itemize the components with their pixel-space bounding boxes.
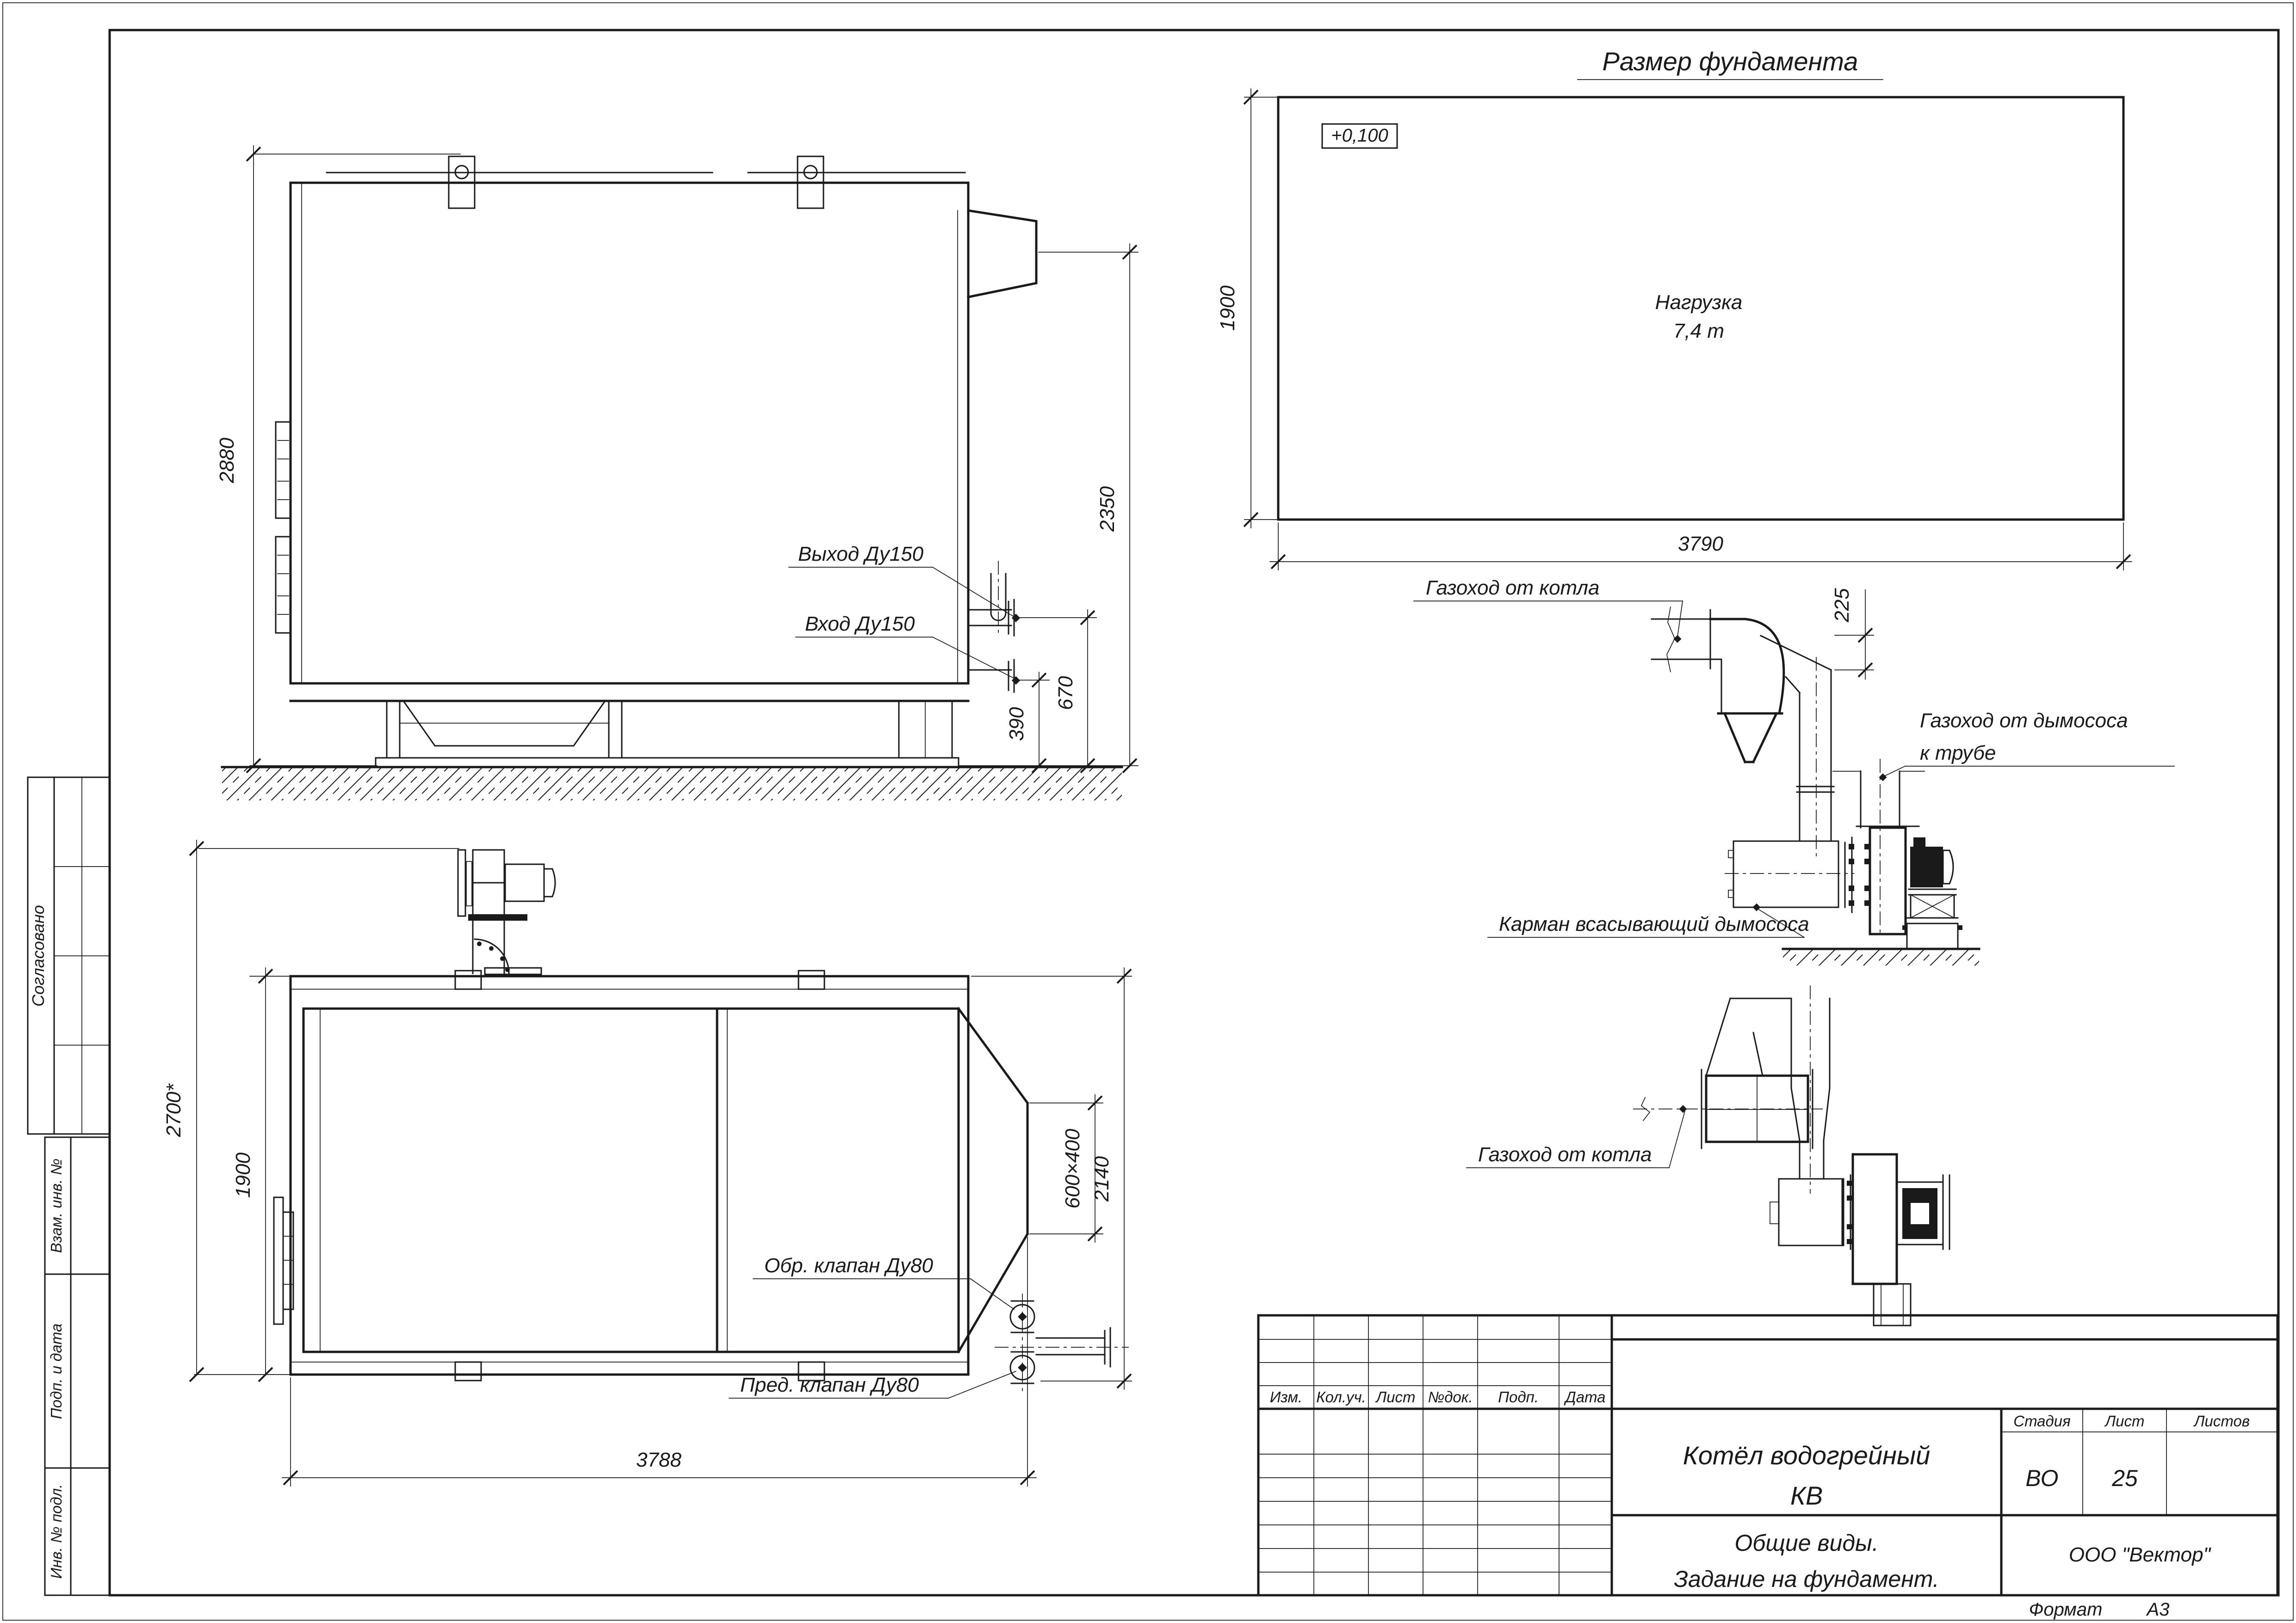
subtitle-1: Общие виды. (1734, 1530, 1878, 1556)
fan-disc-plan (1853, 1154, 1897, 1284)
dim-1900-plan: 1900 (232, 1152, 254, 1198)
ground-hatch (222, 768, 1122, 800)
load-value: 7,4 т (1673, 320, 1724, 342)
suction-pocket-label: Карман всасывающий дымососа (1499, 913, 1809, 935)
plan-inner (303, 1009, 959, 1352)
side-bracket-lower (276, 537, 291, 633)
break-symbol (1667, 607, 1675, 672)
subtitle-2: Задание на фундамент. (1674, 1566, 1939, 1592)
col-data: Дата (1563, 1388, 1605, 1406)
foundation-title: Размер фундамента (1603, 47, 1858, 76)
exhauster-plan (458, 850, 555, 974)
dim-1900-foundation: 1900 (1216, 285, 1239, 331)
pocket-plan (1779, 1179, 1842, 1245)
col-podp: Подп. (1498, 1388, 1539, 1406)
plan-bracket (274, 1197, 283, 1324)
dim-2350: 2350 (1096, 486, 1119, 532)
dim-670: 670 (1054, 676, 1077, 710)
format-label: Формат (2029, 1599, 2103, 1620)
plan-outer (291, 976, 968, 1375)
sheet-label: Лист (2104, 1412, 2145, 1430)
fan-motor (1910, 847, 1943, 887)
stage-value: ВО (2025, 1465, 2058, 1491)
col-ndok: №док. (1428, 1388, 1473, 1406)
boiler-side-view: 2880 2350 670 390 Выход Ду150 Вход Ду150 (216, 146, 1138, 800)
dim-2700: 2700* (162, 1083, 185, 1138)
dim-3790: 3790 (1678, 533, 1723, 555)
side-bracket-upper (276, 422, 291, 518)
flue-from-boiler-label: Газоход от котла (1426, 576, 1600, 599)
company-name: ООО "Вектор" (2069, 1543, 2212, 1566)
inv-podl-label: Инв. № подл. (48, 1484, 65, 1579)
flue-to-stack-label-2: к трубе (1920, 742, 1996, 764)
safety-valve-label: Пред. клапан Ду80 (740, 1374, 919, 1396)
flue-outlet-box (968, 211, 1036, 297)
left-attribute-column: Согласовано Взам. инв. № Подп. и дата Ин… (28, 777, 110, 1595)
outlet-label: Выход Ду150 (798, 543, 924, 565)
sheet-outer-border (3, 3, 2293, 1620)
dim-2140: 2140 (1090, 1156, 1113, 1202)
flue-from-boiler-plan-label: Газоход от котла (1478, 1143, 1652, 1166)
fan-housing (1870, 828, 1906, 934)
stage-label: Стадия (2013, 1412, 2071, 1430)
inlet-label: Вход Ду150 (805, 613, 915, 635)
doc-title-2: КВ (1790, 1481, 1823, 1510)
sheet-inner-frame (110, 30, 2278, 1595)
vzam-label: Взам. инв. № (48, 1158, 65, 1253)
drawing-sheet: Согласовано Взам. инв. № Подп. и дата Ин… (0, 0, 2296, 1623)
dim-225: 225 (1831, 588, 1853, 623)
boiler-body (291, 183, 968, 683)
duct-plan-view: Газоход от котла (1467, 985, 1949, 1326)
dim-3788: 3788 (636, 1449, 681, 1471)
fan-outlet-plan (1874, 1284, 1911, 1326)
col-koluch: Кол.уч. (1316, 1388, 1366, 1406)
leg-mid (609, 701, 622, 758)
load-label: Нагрузка (1655, 291, 1743, 314)
dim-2880: 2880 (216, 438, 238, 483)
dim-390: 390 (1005, 707, 1028, 741)
foundation-plan: Размер фундамента +0,100 Нагрузка 7,4 т … (1216, 47, 2132, 570)
sheets-label: Листов (2193, 1412, 2250, 1430)
leg-left (387, 701, 400, 758)
motor-plan (505, 864, 544, 901)
valves (995, 1294, 1129, 1394)
base-skid (376, 758, 959, 767)
flue-to-stack-label-1: Газоход от дымососа (1920, 709, 2128, 732)
col-list: Лист (1375, 1388, 1416, 1406)
sheet-value: 25 (2111, 1465, 2138, 1491)
col-izm: Изм. (1270, 1388, 1302, 1406)
boiler-plan-view: 2700* 1900 600×400 2140 3788 Обр. клапан… (162, 840, 1132, 1486)
check-valve-label: Обр. клапан Ду80 (764, 1254, 934, 1277)
drawing-canvas: Согласовано Взам. инв. № Подп. и дата Ин… (0, 0, 2296, 1623)
doc-title-1: Котёл водогрейный (1683, 1441, 1931, 1470)
agreed-label: Согласовано (29, 905, 48, 1007)
suction-pocket (1733, 841, 1838, 907)
duct-side-view: 225 (1414, 576, 2174, 966)
format-value: А3 (2146, 1599, 2170, 1620)
elevation-value: +0,100 (1331, 125, 1388, 146)
dim-600x400: 600×400 (1061, 1128, 1084, 1208)
title-block: Изм. Кол.уч. Лист №док. Подп. Дата Котёл… (1258, 1315, 2277, 1595)
podp-data-label: Подп. и дата (48, 1324, 65, 1419)
sheet-frame (3, 3, 2293, 1620)
